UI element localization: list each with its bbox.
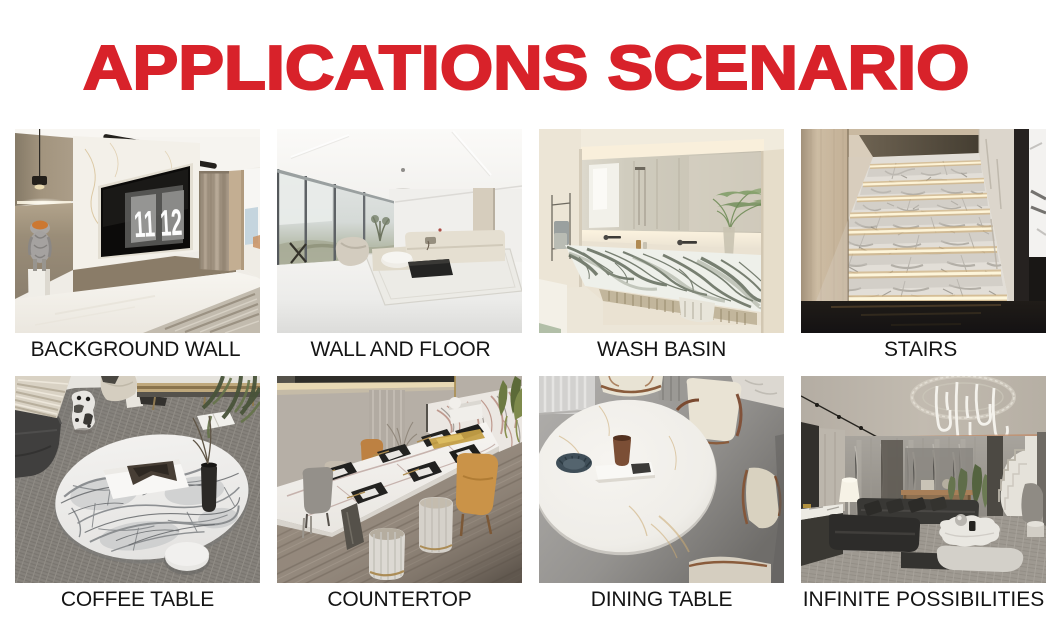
svg-text:11 12: 11 12 <box>133 202 183 245</box>
